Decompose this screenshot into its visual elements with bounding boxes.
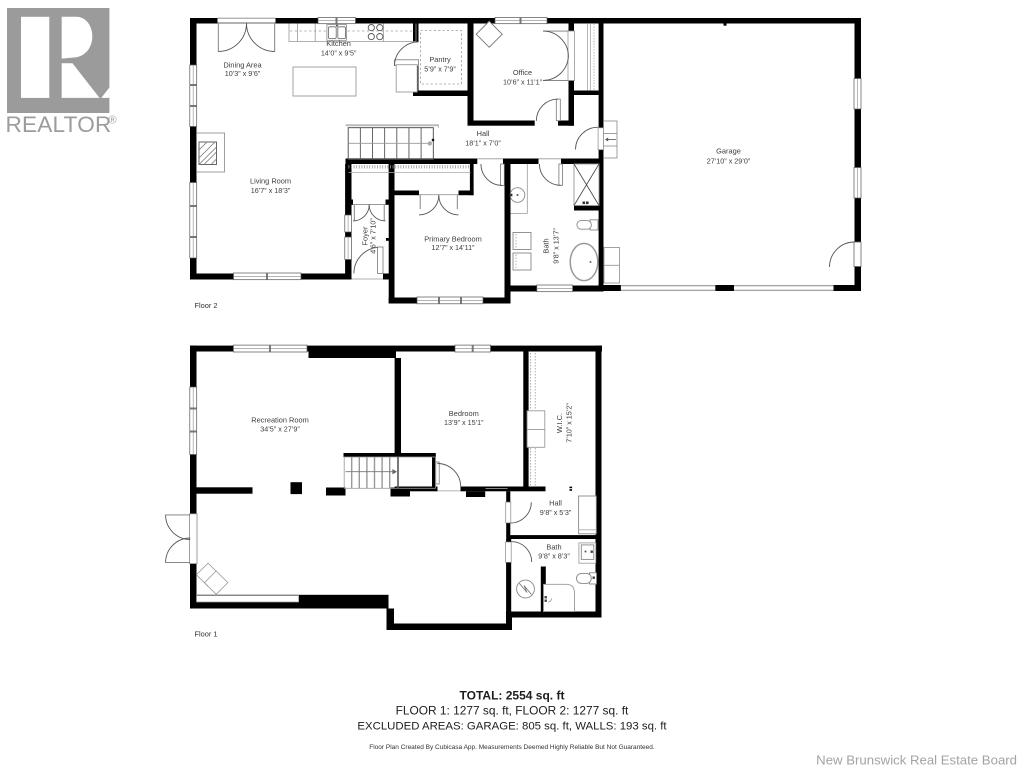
svg-text:®: ® (109, 115, 117, 127)
svg-text:W.I.C.: W.I.C. (555, 413, 564, 433)
svg-text:10’6” x 11’1”: 10’6” x 11’1” (503, 77, 543, 86)
svg-text:27’10” x 29’0”: 27’10” x 29’0” (707, 157, 751, 166)
svg-text:9’8” x 13’7”: 9’8” x 13’7” (551, 228, 560, 264)
svg-text:14’0” x 9’5”: 14’0” x 9’5” (321, 49, 357, 58)
svg-text:9’8” x 8’3”: 9’8” x 8’3” (538, 551, 570, 560)
svg-text:New Brunswick Real Estate Boar: New Brunswick Real Estate Board (816, 753, 1017, 768)
svg-text:12’7” x 14’11”: 12’7” x 14’11” (431, 243, 475, 252)
svg-text:Bath: Bath (542, 238, 551, 253)
svg-text:Hall: Hall (549, 499, 562, 508)
svg-text:Kitchen: Kitchen (326, 39, 351, 48)
svg-text:Bath: Bath (546, 543, 561, 552)
svg-text:18’1” x 7’0”: 18’1” x 7’0” (465, 138, 501, 147)
svg-text:Pantry: Pantry (429, 55, 451, 64)
svg-text:13’9” x 15’1”: 13’9” x 15’1” (444, 418, 484, 427)
svg-text:Floor Plan Created By Cubicasa: Floor Plan Created By Cubicasa App. Meas… (369, 744, 655, 751)
svg-text:Bedroom: Bedroom (449, 409, 479, 418)
svg-text:Office: Office (513, 68, 532, 77)
svg-text:Living Room: Living Room (250, 177, 291, 186)
svg-text:9’8” x 5’3”: 9’8” x 5’3” (540, 508, 572, 517)
svg-text:FLOOR 1: 1277 sq. ft, FLOOR 2:: FLOOR 1: 1277 sq. ft, FLOOR 2: 1277 sq. … (396, 704, 629, 718)
svg-text:Primary Bedroom: Primary Bedroom (424, 235, 482, 244)
svg-text:Floor 1: Floor 1 (195, 630, 218, 639)
svg-text:10’3” x 9’6”: 10’3” x 9’6” (225, 69, 261, 78)
svg-text:Hall: Hall (477, 129, 490, 138)
svg-text:Floor 2: Floor 2 (195, 301, 218, 310)
svg-text:EXCLUDED AREAS: GARAGE: 805 sq: EXCLUDED AREAS: GARAGE: 805 sq. ft, WALL… (357, 720, 667, 732)
svg-text:7’10” x 15’2”: 7’10” x 15’2” (565, 403, 574, 443)
svg-text:REALTOR: REALTOR (6, 112, 112, 137)
svg-text:34’5” x 27’9”: 34’5” x 27’9” (260, 425, 300, 434)
svg-text:Recreation Room: Recreation Room (251, 416, 309, 425)
svg-text:5’9” x 7’9”: 5’9” x 7’9” (424, 64, 456, 73)
svg-text:TOTAL: 2554 sq. ft: TOTAL: 2554 sq. ft (460, 689, 565, 703)
svg-text:Garage: Garage (716, 147, 741, 156)
svg-text:4’6” x 7’10”: 4’6” x 7’10” (369, 218, 378, 254)
svg-text:16’7” x 18’3”: 16’7” x 18’3” (251, 186, 291, 195)
